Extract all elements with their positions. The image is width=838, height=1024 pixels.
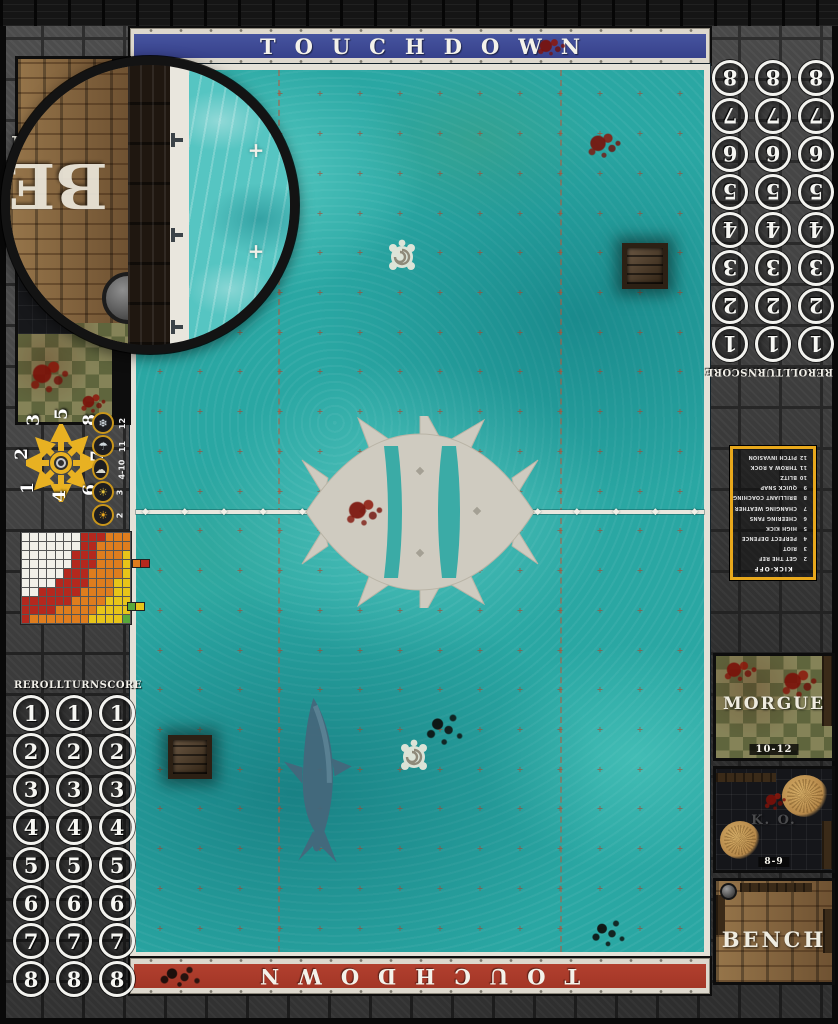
grid-plus-marker: + [248, 138, 265, 162]
range-cell [89, 597, 96, 605]
grid-marker: + [580, 352, 620, 392]
kickoff-roll: 4 [797, 535, 807, 541]
grid-marker: + [500, 869, 540, 909]
grid-marker: + [660, 551, 700, 591]
grid-marker: + [140, 392, 180, 432]
grid-marker: + [180, 352, 220, 392]
range-cell [39, 533, 46, 541]
lens-water: + + [189, 65, 290, 345]
lens-dark-plank [128, 65, 170, 345]
grid-marker: + [180, 789, 220, 829]
turn-track-cell: 1 [712, 326, 748, 362]
magnifier-lens: BE + + [1, 56, 299, 354]
grid-marker: + [420, 233, 460, 273]
range-cell [106, 579, 113, 587]
ink-splatter [586, 915, 626, 949]
range-cell [72, 569, 79, 577]
range-cell [64, 542, 71, 550]
grid-marker: + [660, 392, 700, 432]
kickoff-result: PITCH INVASION [748, 454, 797, 460]
centerline-diamond: ◆ [260, 505, 267, 519]
blood-splatter [26, 354, 72, 398]
turn-track-cell: 7 [712, 98, 748, 134]
grid-marker: + [140, 829, 180, 869]
grid-marker: + [380, 312, 420, 352]
turn-track-cell: 1 [99, 695, 135, 731]
grid-marker: + [340, 233, 380, 273]
grid-marker: + [660, 630, 700, 670]
turn-track-label: TURN [64, 680, 100, 691]
turn-track-cell: 8 [56, 961, 92, 997]
range-cell [97, 551, 104, 559]
range-cell [72, 615, 79, 623]
centerline-diamond: ◆ [691, 505, 698, 519]
grid-marker: + [660, 869, 700, 909]
grid-marker: + [420, 352, 460, 392]
turn-track-cell: 6 [755, 136, 791, 172]
range-cell [81, 569, 88, 577]
grid-marker: + [220, 630, 260, 670]
grid-marker: + [380, 829, 420, 869]
weather-value: 4-10 [117, 459, 126, 479]
grid-marker: + [340, 869, 380, 909]
scatter-number: 3 [24, 414, 44, 426]
grid-marker: + [620, 352, 660, 392]
kickoff-roll: 10 [797, 474, 807, 480]
grid-marker: + [140, 352, 180, 392]
range-cell [47, 542, 54, 550]
grid-marker: + [180, 670, 220, 710]
turn-track-label: SCORE [100, 680, 142, 691]
turn-track-cell: 8 [755, 60, 791, 96]
wood-beam [716, 773, 776, 782]
grid-marker: + [420, 74, 460, 114]
range-cell [81, 588, 88, 596]
turn-track-cell: 5 [712, 174, 748, 210]
turn-track-row: 111 [712, 326, 834, 362]
turn-track-cell: 2 [755, 288, 791, 324]
grid-marker: + [260, 869, 300, 909]
range-cell [89, 551, 96, 559]
grid-marker: + [460, 829, 500, 869]
grid-marker: + [580, 74, 620, 114]
kickoff-result: CHEERING FANS [749, 515, 797, 521]
grid-marker: + [580, 193, 620, 233]
turn-track-right: REROLLTURNSCORE111222333444555666777888 [712, 58, 834, 377]
grid-marker: + [180, 432, 220, 472]
range-cell [22, 542, 29, 550]
lens-checker-sliver [44, 323, 128, 345]
range-cell [47, 579, 54, 587]
range-cell [22, 597, 29, 605]
ko-label: K. O. [716, 813, 832, 828]
grid-marker: + [460, 670, 500, 710]
turn-track-cell: 2 [712, 288, 748, 324]
grid-marker: + [580, 273, 620, 313]
range-cell [47, 551, 54, 559]
touchdown-banner-top: TOUCHDOWN [130, 28, 710, 64]
grid-marker: + [140, 789, 180, 829]
grid-marker: + [620, 312, 660, 352]
turn-track-cell: 1 [13, 695, 49, 731]
kickoff-table-content: KICK-OFF2GET THE REF3RIOT4PERFECT DEFENC… [736, 452, 810, 574]
turn-track-labels: REROLLTURNSCORE [14, 680, 134, 691]
grid-marker: + [220, 789, 260, 829]
grid-marker: + [380, 273, 420, 313]
grid-marker: + [620, 392, 660, 432]
range-cell [56, 588, 63, 596]
grid-marker: + [620, 193, 660, 233]
rain-icon: ☂ [92, 435, 114, 457]
range-cell [89, 560, 96, 568]
range-cell [64, 569, 71, 577]
turn-track-cell: 5 [755, 174, 791, 210]
range-cell [47, 588, 54, 596]
grid-marker: + [340, 352, 380, 392]
grid-marker: + [220, 432, 260, 472]
grid-marker: + [420, 869, 460, 909]
range-cell [30, 533, 37, 541]
grid-marker: + [580, 829, 620, 869]
kickoff-result: RIOT [783, 545, 797, 551]
range-cell [114, 560, 121, 568]
grid-marker: + [260, 551, 300, 591]
range-cell [97, 606, 104, 614]
sideline-hash [171, 138, 183, 142]
turn-track-cell: 6 [13, 885, 49, 921]
range-cell [81, 579, 88, 587]
weather-value: 11 [118, 440, 127, 451]
grid-marker: + [380, 789, 420, 829]
range-cell [39, 606, 46, 614]
turn-track-row: 444 [13, 809, 135, 845]
range-cell [123, 579, 130, 587]
turn-track-cell: 4 [755, 212, 791, 248]
scatter-dial: 35827146 [20, 416, 102, 514]
grid-marker: + [220, 869, 260, 909]
range-cell [30, 569, 37, 577]
range-cell [114, 533, 121, 541]
grid-marker: + [580, 392, 620, 432]
range-cell [97, 560, 104, 568]
grid-marker: + [300, 869, 340, 909]
touchdown-text-bottom: TOUCHDOWN [241, 964, 599, 988]
kickoff-table: KICK-OFF2GET THE REF3RIOT4PERFECT DEFENC… [730, 446, 816, 580]
range-cell [47, 560, 54, 568]
grid-marker: + [220, 551, 260, 591]
range-cell [22, 579, 29, 587]
grid-marker: + [380, 869, 420, 909]
turn-track-cell: 3 [755, 250, 791, 286]
grid-marker: + [380, 114, 420, 154]
range-cell [106, 569, 113, 577]
weather-track: ❄12☂11☁4-10☀3☀2 [92, 412, 132, 527]
grid-marker: + [620, 432, 660, 472]
range-cell [72, 542, 79, 550]
range-cell [114, 579, 121, 587]
grid-marker: + [180, 392, 220, 432]
range-cell [56, 569, 63, 577]
grid-marker: + [340, 273, 380, 313]
range-cell [106, 588, 113, 596]
grid-marker: + [300, 193, 340, 233]
grid-marker: + [140, 869, 180, 909]
dugout-bench: BENCH [713, 878, 835, 985]
range-cell [114, 597, 121, 605]
turn-track-row: 222 [13, 733, 135, 769]
range-cell [114, 615, 121, 623]
grid-marker: + [660, 352, 700, 392]
range-cell [72, 533, 79, 541]
grid-marker: + [300, 74, 340, 114]
legend-swatch [128, 603, 136, 610]
sideline-hash [171, 325, 183, 329]
range-cell [81, 542, 88, 550]
kickoff-roll: 3 [797, 545, 807, 551]
range-legend-chip [133, 560, 149, 567]
kickoff-row: 4PERFECT DEFENCE [739, 535, 807, 541]
grid-marker: + [420, 908, 460, 948]
grid-marker: + [340, 630, 380, 670]
turn-track-row: 555 [712, 174, 834, 210]
legend-swatch [136, 603, 144, 610]
range-cell [123, 551, 130, 559]
range-cell [89, 569, 96, 577]
grid-marker: + [220, 749, 260, 789]
turn-track-cell: 7 [13, 923, 49, 959]
range-cell [39, 615, 46, 623]
grid-marker: + [180, 551, 220, 591]
scatter-number: 4 [50, 490, 70, 502]
turn-track-cell: 1 [755, 326, 791, 362]
range-cell [64, 579, 71, 587]
range-cell [72, 551, 79, 559]
grid-marker: + [660, 829, 700, 869]
grid-marker: + [140, 590, 180, 630]
grid-marker: + [660, 153, 700, 193]
lens-bench-letters: BE [1, 149, 116, 222]
range-cell [97, 542, 104, 550]
kickoff-roll: 7 [797, 505, 807, 511]
grid-marker: + [380, 670, 420, 710]
turn-track-row: 777 [13, 923, 135, 959]
range-cell [39, 579, 46, 587]
grid-marker: + [180, 829, 220, 869]
kickoff-roll: 8 [797, 494, 807, 500]
grid-marker: + [460, 193, 500, 233]
weather-row: ❄12 [92, 412, 132, 434]
range-cell [89, 606, 96, 614]
weather-row: ☁4-10 [92, 458, 132, 480]
grid-marker: + [620, 670, 660, 710]
range-cell [97, 615, 104, 623]
turn-track-cell: 5 [13, 847, 49, 883]
grid-marker: + [660, 670, 700, 710]
grid-marker: + [460, 352, 500, 392]
grid-marker: + [460, 233, 500, 273]
kickoff-result: BLITZ [780, 474, 797, 480]
grid-marker: + [220, 392, 260, 432]
grid-marker: + [260, 352, 300, 392]
turn-track-cell: 6 [712, 136, 748, 172]
grid-marker: + [380, 352, 420, 392]
grid-marker: + [420, 273, 460, 313]
range-cell [81, 606, 88, 614]
grid-marker: + [140, 432, 180, 472]
range-cell [97, 533, 104, 541]
scatter-number: 2 [12, 448, 32, 460]
turn-track-cell: 1 [798, 326, 834, 362]
grid-marker: + [660, 114, 700, 154]
grid-marker: + [460, 869, 500, 909]
touchdown-banner-bottom: TOUCHDOWN [130, 958, 710, 994]
range-cell [89, 588, 96, 596]
grid-marker: + [140, 908, 180, 948]
grid-marker: + [580, 432, 620, 472]
grid-marker: + [460, 710, 500, 750]
turn-track-row: 888 [712, 60, 834, 96]
game-mat: TOUCHDOWN ++++++++++++++++++++++++++++++… [0, 0, 838, 1024]
range-cell [72, 606, 79, 614]
blood-splatter [720, 658, 760, 684]
range-cell [30, 551, 37, 559]
grid-marker: + [300, 273, 340, 313]
grid-marker: + [500, 153, 540, 193]
kickoff-roll: 11 [797, 464, 807, 470]
grid-marker: + [660, 908, 700, 948]
grid-marker: + [340, 193, 380, 233]
grid-marker: + [260, 432, 300, 472]
range-cell [22, 551, 29, 559]
turn-track-label: REROLL [783, 366, 833, 377]
grid-marker: + [620, 749, 660, 789]
range-cell [123, 588, 130, 596]
grid-marker: + [660, 432, 700, 472]
pass-range-chart [21, 532, 131, 624]
turn-track-cell: 5 [99, 847, 135, 883]
grid-marker: + [420, 789, 460, 829]
grid-marker: + [660, 312, 700, 352]
barrel-knob [720, 883, 737, 900]
sunny-icon: ☀ [92, 481, 114, 503]
grid-marker: + [500, 630, 540, 670]
turn-track-row: 222 [712, 288, 834, 324]
grid-marker: + [460, 749, 500, 789]
turn-track-cell: 4 [712, 212, 748, 248]
grid-marker: + [500, 829, 540, 869]
kickoff-row: 8BRILLIANT COACHING [739, 494, 807, 500]
grid-marker: + [340, 908, 380, 948]
range-cell [97, 579, 104, 587]
grid-marker: + [340, 74, 380, 114]
range-cell [89, 533, 96, 541]
range-cell [56, 542, 63, 550]
range-cell [47, 615, 54, 623]
wood-beam [822, 656, 832, 726]
centerline-diamond: ◆ [142, 505, 149, 519]
range-cell [56, 551, 63, 559]
turn-track-cell: 6 [56, 885, 92, 921]
grid-marker: + [220, 710, 260, 750]
range-cell [22, 615, 29, 623]
range-cell [72, 560, 79, 568]
grid-marker: + [620, 74, 660, 114]
grid-marker: + [300, 153, 340, 193]
grid-marker: + [260, 392, 300, 432]
grid-marker: + [620, 710, 660, 750]
grid-marker: + [580, 312, 620, 352]
grid-marker: + [260, 908, 300, 948]
grid-marker: + [300, 908, 340, 948]
grid-marker: + [620, 153, 660, 193]
blood-splatter [762, 789, 788, 813]
ink-splatter [420, 708, 464, 748]
turn-track-row: 888 [13, 961, 135, 997]
range-cell [22, 533, 29, 541]
grid-marker: + [460, 312, 500, 352]
turn-track-row: 111 [13, 695, 135, 731]
range-cell [30, 606, 37, 614]
grid-marker: + [300, 352, 340, 392]
range-cell [106, 597, 113, 605]
turn-track-cell: 7 [99, 923, 135, 959]
grid-marker: + [180, 630, 220, 670]
range-cell [72, 588, 79, 596]
scatter-number: 1 [18, 482, 38, 494]
hay-pile [782, 775, 828, 817]
grid-marker: + [500, 749, 540, 789]
range-cell [106, 560, 113, 568]
turn-track-label: REROLL [14, 680, 64, 691]
range-cell [123, 569, 130, 577]
grid-marker: + [620, 630, 660, 670]
turn-track-cell: 7 [798, 98, 834, 134]
grid-marker: + [220, 590, 260, 630]
lens-sideline [170, 65, 190, 345]
grid-marker: + [460, 273, 500, 313]
range-cell [39, 569, 46, 577]
ko-range: 8-9 [758, 857, 789, 867]
grid-plus-marker: + [248, 239, 265, 263]
kickoff-row: 12PITCH INVASION [739, 454, 807, 460]
range-cell [106, 551, 113, 559]
turn-track-cell: 4 [798, 212, 834, 248]
range-cell [64, 588, 71, 596]
range-cell [106, 615, 113, 623]
grid-marker: + [260, 590, 300, 630]
range-cell [30, 615, 37, 623]
grid-marker: + [580, 233, 620, 273]
kickoff-result: QUICK SNAP [760, 484, 797, 490]
spiked-ball-logo [298, 416, 542, 608]
grid-marker: + [660, 749, 700, 789]
turn-track-cell: 3 [712, 250, 748, 286]
turn-track-cell: 5 [56, 847, 92, 883]
kickoff-row: 10BLITZ [739, 474, 807, 480]
range-cell [81, 597, 88, 605]
turn-track-row: 666 [13, 885, 135, 921]
range-legend-chip [128, 603, 144, 610]
wood-beam [740, 883, 812, 892]
sideline-hash [171, 233, 183, 237]
range-cell [22, 569, 29, 577]
range-cell [97, 588, 104, 596]
turn-track-label: TURN [747, 366, 783, 377]
sweltering-sun-icon: ☀ [92, 504, 114, 526]
grid-marker: + [500, 233, 540, 273]
weather-value: 2 [115, 512, 124, 518]
range-cell [123, 615, 130, 623]
